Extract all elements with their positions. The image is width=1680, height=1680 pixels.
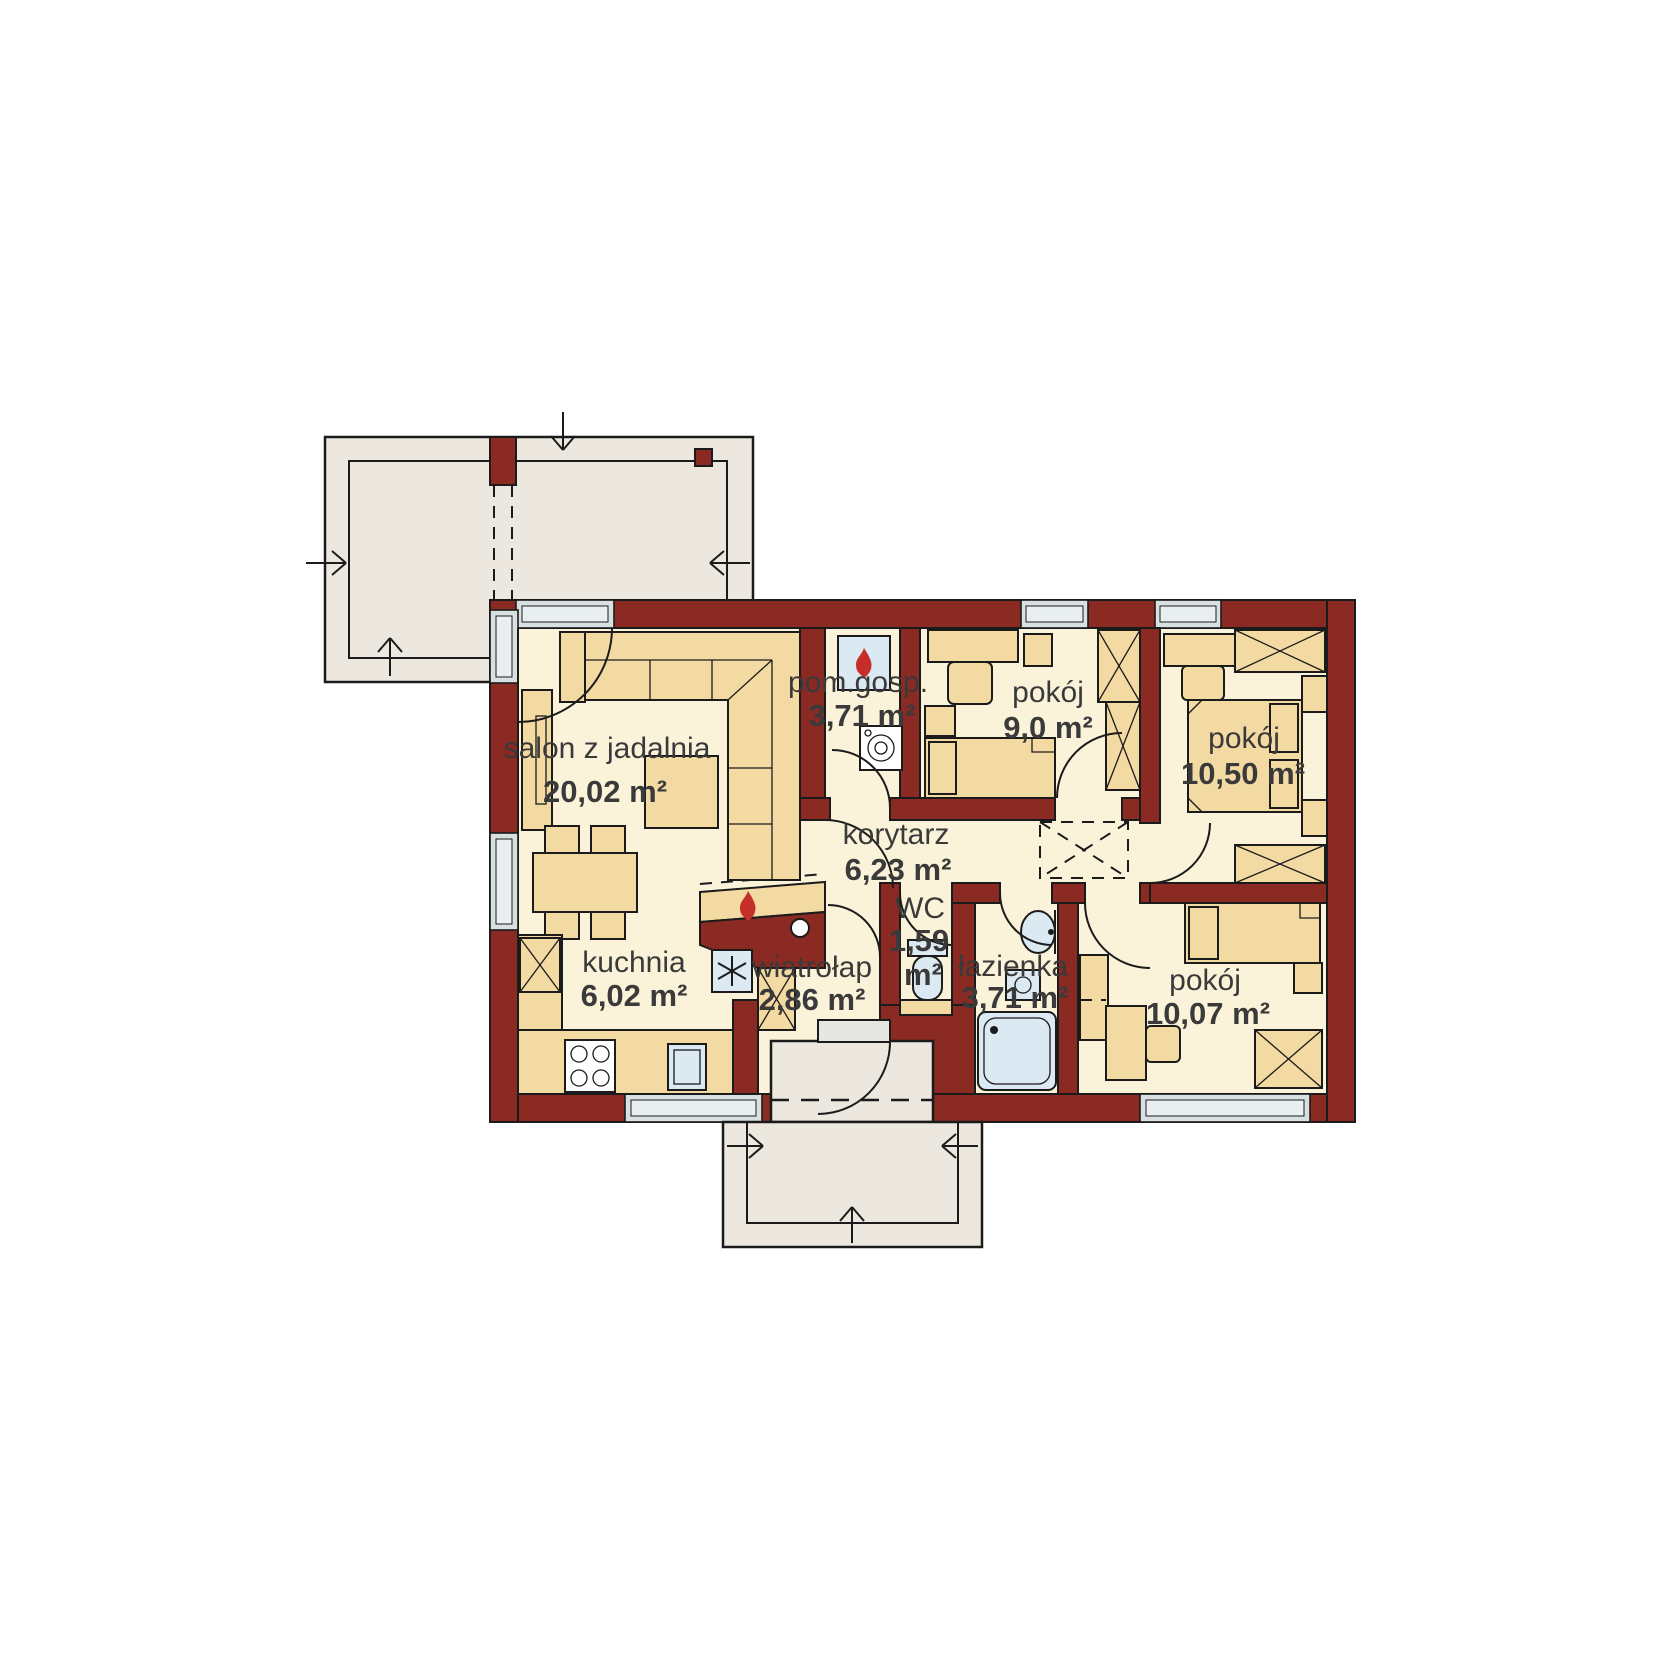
chair [1182, 666, 1224, 700]
wardrobe [1235, 630, 1325, 672]
window-pokoj1050 [1155, 600, 1221, 628]
room-area-lazienka: 3,71 m² [962, 980, 1069, 1015]
wall-right [1327, 600, 1355, 1122]
wall-korytarz-north [800, 798, 830, 820]
dining-table [533, 853, 637, 912]
nightstand [1302, 800, 1327, 836]
pillow [929, 742, 956, 794]
sofa-armrest [560, 632, 585, 702]
wall-top [490, 600, 1355, 628]
porch [723, 1122, 982, 1247]
chair [1146, 1026, 1180, 1062]
room-area-korytarz: 6,23 m² [845, 852, 952, 887]
room-area-wiatrolap: 2,86 m² [759, 982, 866, 1017]
terrace-door-opening [516, 600, 614, 628]
room-label-wiatrolap: wiatrołap [751, 951, 872, 984]
bathroom-sink [1021, 910, 1055, 954]
room-label-korytarz: korytarz [843, 818, 950, 851]
wall-korytarz-north [890, 798, 1055, 820]
wardrobe [1106, 702, 1140, 790]
room-label-pomgosp: pom.gosp. [788, 666, 928, 699]
wall-pokoj1050-pokoj1007 [1150, 883, 1327, 903]
entrance-door-leaf [818, 1020, 890, 1042]
window-kuchnia [625, 1094, 762, 1122]
room-label-wc: WC [895, 892, 945, 925]
nightstand [925, 706, 955, 736]
cabinet [1080, 955, 1108, 1040]
wall-kuchnia-wiatrolap [733, 1000, 758, 1094]
room-label-salon: salon z jadalnia [504, 732, 711, 765]
bed-single [1185, 903, 1320, 963]
room-area-wc-value: 1,59 [889, 923, 949, 958]
terrace-post [695, 449, 712, 466]
room-label-kuchnia: kuchnia [582, 946, 686, 979]
wall-korytarz-south [952, 883, 1000, 903]
room-label-pokoj1050: pokój [1208, 722, 1280, 755]
floor-plan-page: salon z jadalnia 20,02 m² pom.gosp. 3,71… [0, 0, 1680, 1680]
window-pokoj9 [1021, 600, 1088, 628]
room-label-pokoj9: pokój [1012, 676, 1084, 709]
room-area-pomgosp: 3,71 m² [809, 698, 916, 733]
chair [948, 662, 992, 704]
dining-chair [591, 826, 625, 853]
terrace-wall-pier [490, 437, 516, 485]
room-label-pokoj1007: pokój [1169, 964, 1241, 997]
nightstand [1294, 963, 1322, 993]
floor-plan-svg: salon z jadalnia 20,02 m² pom.gosp. 3,71… [0, 0, 1680, 1680]
entrance-niche [771, 1041, 933, 1122]
bathtub [978, 1012, 1056, 1090]
wardrobe [1098, 630, 1140, 702]
room-area-pokoj9: 9,0 m² [1003, 710, 1093, 745]
wardrobe [1235, 845, 1325, 883]
room-label-lazienka: łazienka [958, 950, 1068, 983]
nightstand [1302, 676, 1327, 712]
bed-single [925, 738, 1055, 798]
kitchen-sink [668, 1044, 706, 1090]
wc-shelf [900, 1000, 952, 1015]
dining-chair [591, 912, 625, 939]
desk [1106, 1006, 1146, 1080]
room-area-pokoj1007: 10,07 m² [1146, 996, 1270, 1031]
room-area-salon: 20,02 m² [543, 774, 667, 809]
dining-chair [545, 826, 579, 853]
fireplace-flue-circle [791, 919, 809, 937]
room-area-pokoj1050: 10,50 m² [1181, 756, 1305, 791]
wardrobe [1255, 1030, 1322, 1088]
room-area-wc-unit: m² [904, 957, 942, 992]
wall-pokoj1050-west [1140, 628, 1160, 823]
desk [928, 630, 1018, 662]
stove [565, 1040, 615, 1092]
shelf [1024, 634, 1052, 666]
window-salon-left-upper [490, 610, 518, 683]
pillow [1189, 907, 1218, 959]
window-salon-left-lower [490, 833, 518, 930]
room-area-kuchnia: 6,02 m² [581, 978, 688, 1013]
window-pokoj1007 [1140, 1094, 1310, 1122]
cooker-hood-icon [712, 950, 752, 992]
fridge [520, 938, 560, 992]
wall-korytarz-south [1052, 883, 1085, 903]
